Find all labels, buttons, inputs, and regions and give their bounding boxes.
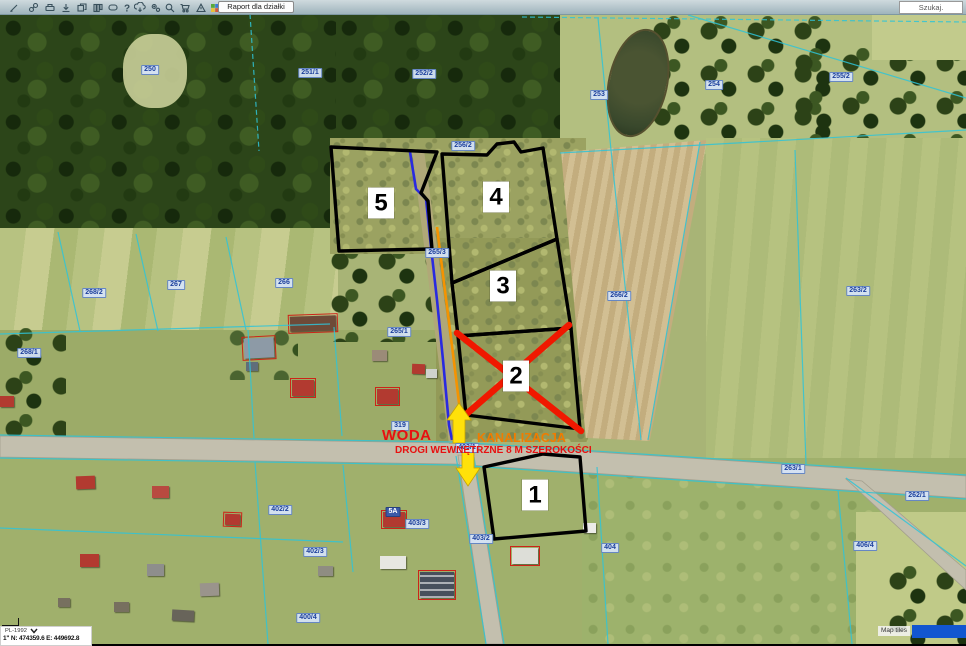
- coordinates-readout: 1" N: 474359.6 E: 449692.8: [1, 635, 91, 644]
- coordinate-panel: PL-1992 1" N: 474359.6 E: 449692.8: [0, 626, 92, 646]
- crs-label: PL-1992: [5, 628, 27, 634]
- report-parcel-button[interactable]: Raport dla działki: [218, 1, 294, 13]
- cart-icon[interactable]: [179, 1, 191, 13]
- svg-text:?: ?: [124, 4, 130, 15]
- parcel-label-267: 267: [167, 280, 185, 290]
- search-zoom-icon[interactable]: [164, 1, 176, 13]
- water-label: WODA: [382, 427, 432, 444]
- parcel-label-403-3: 403/3: [405, 519, 429, 529]
- map-vector-overlay: [0, 0, 966, 644]
- parcel-label-406-4: 406/4: [853, 541, 877, 551]
- parcel-label-400-4: 400/4: [296, 613, 320, 623]
- parcel-label-251-1: 251/1: [298, 68, 322, 78]
- parcel-label-402-2: 402/2: [268, 505, 292, 515]
- internal-roads-label: DROGI WEWNĘTRZNE 8 M SZEROKOŚCI: [395, 445, 592, 456]
- parcel-label-262-1: 262/1: [905, 491, 929, 501]
- attribution-link[interactable]: [912, 625, 966, 638]
- comment-icon[interactable]: [107, 1, 119, 13]
- search-button[interactable]: Szukaj.: [899, 1, 963, 14]
- plot-number-badge-5: 5: [368, 188, 394, 219]
- help-icon[interactable]: ?: [121, 1, 133, 13]
- chevron-down-icon[interactable]: [30, 628, 38, 634]
- aerial-map-viewport[interactable]: 250251/1252/2253254255/2256/2268/2267266…: [0, 0, 966, 644]
- building-label-5A: 5A: [386, 507, 401, 517]
- link-icon[interactable]: [28, 1, 40, 13]
- layout-columns-icon[interactable]: [92, 1, 104, 13]
- sewage-label: KANALIZACJA: [477, 431, 566, 445]
- parcel-label-263-2: 263/2: [846, 286, 870, 296]
- print-icon[interactable]: [44, 1, 56, 13]
- parcel-label-253: 253: [590, 90, 608, 100]
- parcel-label-256-2: 256/2: [451, 141, 475, 151]
- edit-icon[interactable]: [8, 1, 20, 13]
- parcel-label-265-3: 265/3: [425, 248, 449, 258]
- parcel-label-263-1: 263/1: [781, 464, 805, 474]
- copy-icon[interactable]: [76, 1, 88, 13]
- parcel-label-250: 250: [141, 65, 159, 75]
- parcel-label-403-2: 403/2: [469, 534, 493, 544]
- parcel-label-255-2: 255/2: [829, 72, 853, 82]
- parcel-label-252-2: 252/2: [412, 69, 436, 79]
- parcel-label-266-2: 266/2: [607, 291, 631, 301]
- toolbar: ? Raport dla działki Szukaj.: [0, 0, 966, 15]
- parcel-label-402-3: 402/3: [303, 547, 327, 557]
- parcel-label-404: 404: [601, 543, 619, 553]
- south-road: [458, 455, 503, 644]
- plot-number-badge-4: 4: [483, 182, 509, 213]
- parcel-label-266: 266: [275, 278, 293, 288]
- parcel-label-265-1: 265/1: [387, 327, 411, 337]
- map-attribution: Map tiles: [878, 626, 910, 636]
- cloud-download-icon[interactable]: [134, 1, 146, 13]
- scale-bar: [2, 618, 19, 626]
- parcel-label-268-1: 268/1: [17, 348, 41, 358]
- parcel-label-254: 254: [705, 80, 723, 90]
- geoportal-app: { "toolbar": { "report_button": "Raport …: [0, 0, 966, 644]
- parcel-label-268-2: 268/2: [82, 288, 106, 298]
- plot-number-badge-3: 3: [490, 271, 516, 302]
- plot-number-badge-2: 2: [503, 361, 529, 392]
- warning-icon[interactable]: [195, 1, 207, 13]
- settings-gears-icon[interactable]: [150, 1, 162, 13]
- download-icon[interactable]: [60, 1, 72, 13]
- plot-number-badge-1: 1: [522, 480, 548, 511]
